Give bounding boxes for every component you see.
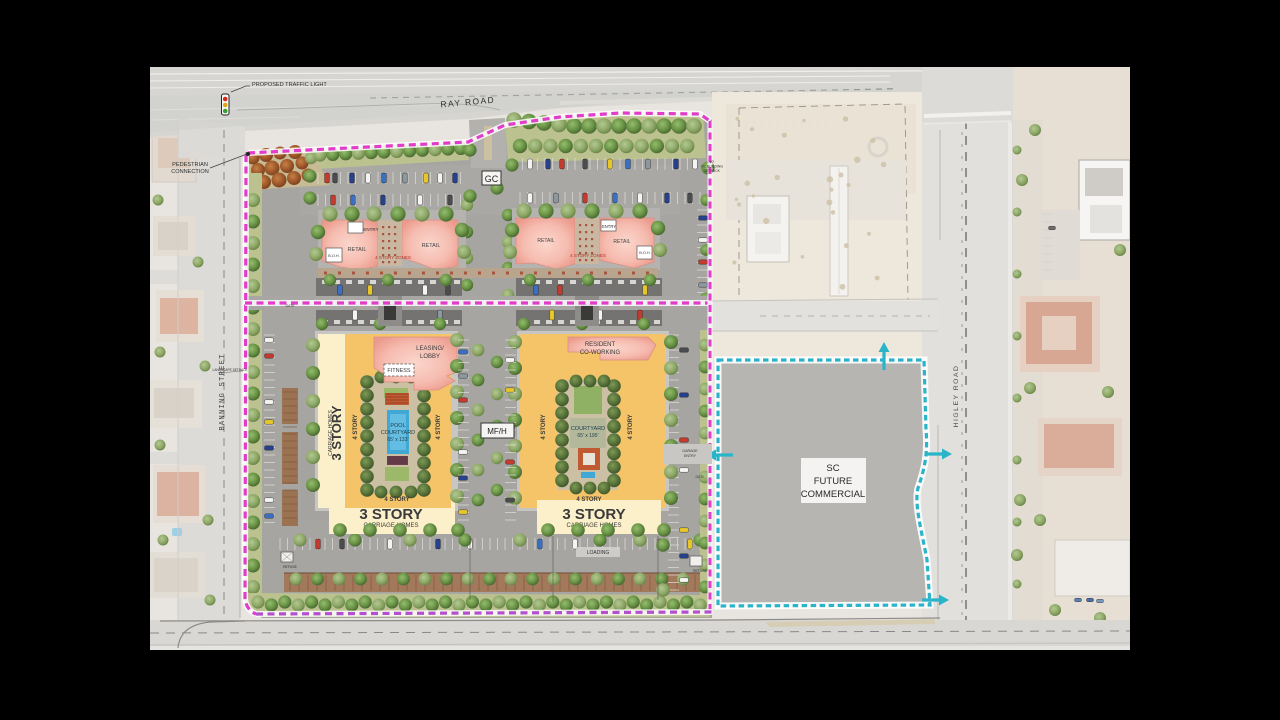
svg-text:B.O.H.: B.O.H. xyxy=(328,254,339,258)
svg-text:LOADING: LOADING xyxy=(587,550,610,556)
svg-text:COURTYARD: COURTYARD xyxy=(571,426,605,432)
svg-text:GATE: GATE xyxy=(696,475,706,479)
svg-text:4 STORY: 4 STORY xyxy=(576,497,601,503)
svg-text:4 STORY ZONES: 4 STORY ZONES xyxy=(375,255,411,260)
svg-text:GARAGE: GARAGE xyxy=(682,449,698,453)
svg-text:65’ x 133’: 65’ x 133’ xyxy=(387,437,408,443)
svg-text:RETAIL: RETAIL xyxy=(348,247,367,253)
svg-text:4 STORY ZONES: 4 STORY ZONES xyxy=(570,253,606,258)
svg-text:RETAIL: RETAIL xyxy=(537,238,554,244)
svg-text:20’: 20’ xyxy=(710,160,715,164)
svg-text:ENTRY: ENTRY xyxy=(602,224,616,229)
svg-text:CARRIAGE HOMES: CARRIAGE HOMES xyxy=(328,409,334,456)
svg-text:RESIDENT: RESIDENT xyxy=(585,342,616,348)
svg-text:ENTRY: ENTRY xyxy=(684,454,697,458)
svg-text:HIGLEY ROAD: HIGLEY ROAD xyxy=(953,365,960,428)
svg-text:MF/H: MF/H xyxy=(487,427,507,436)
svg-text:OC BUILDING: OC BUILDING xyxy=(701,165,723,169)
svg-text:LANDSCAPE SETBACK: LANDSCAPE SETBACK xyxy=(212,368,248,372)
svg-text:3 STORY: 3 STORY xyxy=(359,506,422,523)
svg-text:LOBBY: LOBBY xyxy=(420,354,440,360)
svg-text:3 STORY: 3 STORY xyxy=(562,506,625,523)
svg-text:GATE: GATE xyxy=(286,304,296,308)
svg-text:REFUSE: REFUSE xyxy=(283,565,297,569)
svg-text:COURTYARD: COURTYARD xyxy=(381,430,415,436)
svg-text:65’ x 195’: 65’ x 195’ xyxy=(577,433,598,439)
svg-text:4 STORY: 4 STORY xyxy=(436,414,442,439)
svg-text:GC: GC xyxy=(485,174,499,184)
svg-text:RETAIL: RETAIL xyxy=(422,243,441,249)
svg-text:BANNING STREET: BANNING STREET xyxy=(219,353,227,430)
svg-text:ENTRY: ENTRY xyxy=(363,227,378,232)
svg-text:4 STORY: 4 STORY xyxy=(541,414,547,439)
svg-text:4 STORY: 4 STORY xyxy=(384,497,409,503)
svg-text:POOL: POOL xyxy=(390,423,405,429)
svg-text:PROPOSED TRAFFIC LIGHT: PROPOSED TRAFFIC LIGHT xyxy=(252,82,327,88)
svg-text:CO-WORKING: CO-WORKING xyxy=(580,350,621,356)
svg-text:B.O.H.: B.O.H. xyxy=(639,251,650,255)
svg-text:RETAIL: RETAIL xyxy=(613,239,630,245)
svg-text:SC: SC xyxy=(826,463,839,474)
svg-text:4 STORY: 4 STORY xyxy=(353,414,359,439)
svg-text:SETBACK: SETBACK xyxy=(704,169,721,173)
svg-text:LEASING/: LEASING/ xyxy=(416,346,444,352)
svg-text:FITNESS: FITNESS xyxy=(387,368,411,374)
svg-text:COMMERCIAL: COMMERCIAL xyxy=(801,489,865,500)
svg-text:FUTURE: FUTURE xyxy=(814,476,853,487)
svg-text:CONNECTION: CONNECTION xyxy=(171,169,209,175)
svg-text:4 STORY: 4 STORY xyxy=(628,414,634,439)
svg-text:REFUSE: REFUSE xyxy=(693,569,707,573)
svg-text:PEDESTRIAN: PEDESTRIAN xyxy=(172,162,208,168)
